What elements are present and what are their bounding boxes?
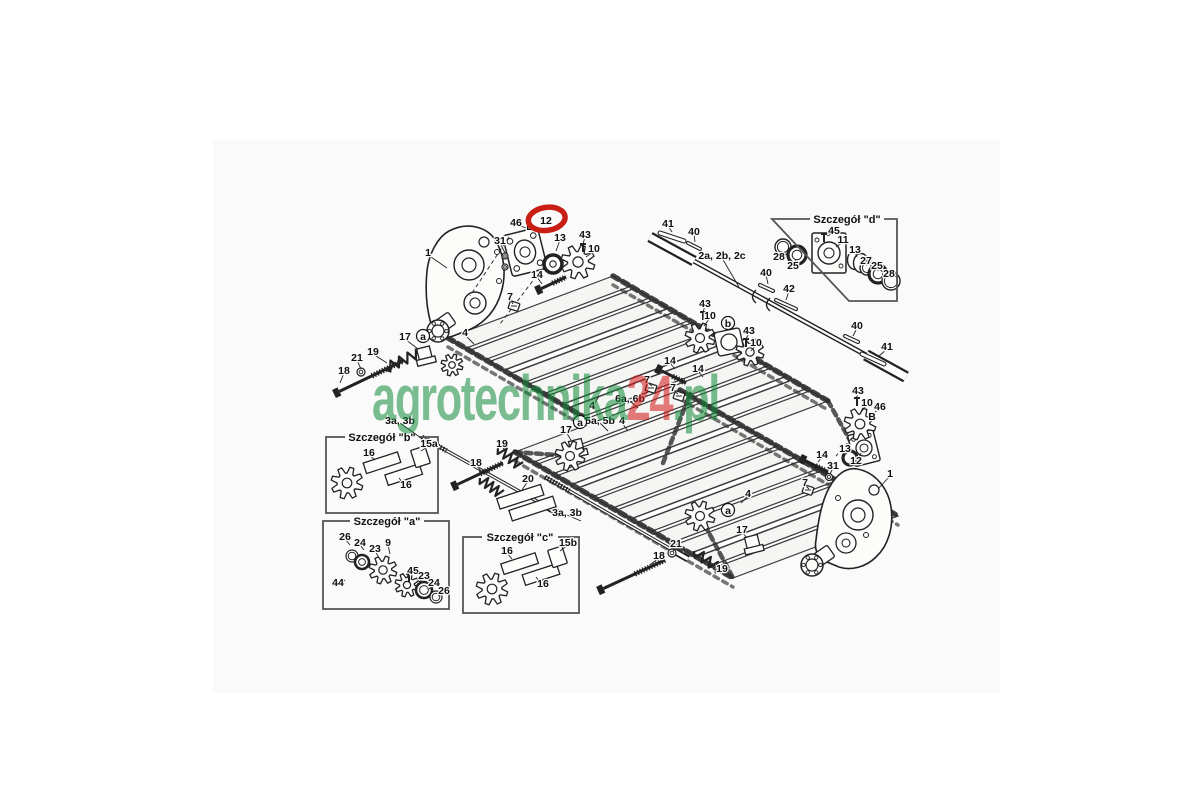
part-callout-7: 7 (802, 477, 808, 489)
part-callout-14: 14 (692, 363, 704, 375)
part-callout-43: 43 (579, 229, 591, 241)
product-image-area: Szczegół "d" Szczegół "b" Szczegół "a" S… (213, 140, 1000, 693)
part-callout-7: 7 (644, 374, 650, 386)
part-callout-17: 17 (736, 524, 748, 536)
part-callout-41: 41 (662, 218, 674, 230)
part-callout-13: 13 (554, 232, 566, 244)
part-callout-12: 12 (540, 215, 552, 227)
detail-box-title-d: Szczegół "d" (813, 214, 880, 226)
part-callout-b: b (725, 318, 731, 330)
part-callout-15a: 15a (420, 438, 438, 450)
part-callout-1: 1 (887, 468, 893, 480)
part-callout-28: 28 (883, 268, 895, 280)
part-callout-31: 31 (827, 460, 839, 472)
part-callout-43: 43 (743, 325, 755, 337)
part-callout-3a3b: 3a, 3b (385, 415, 415, 427)
part-callout-4: 4 (462, 327, 468, 339)
part-callout-4: 4 (619, 415, 625, 427)
part-callout-18: 18 (653, 550, 665, 562)
part-callout-26: 26 (339, 531, 351, 543)
part-callout-14: 14 (664, 355, 676, 367)
part-callout-a: a (577, 417, 583, 429)
detail-box-title-a: Szczegół "a" (354, 516, 421, 528)
part-callout-24: 24 (354, 537, 366, 549)
part-callout-28: 28 (773, 251, 785, 263)
part-callout-25: 25 (787, 260, 799, 272)
part-callout-21: 21 (351, 352, 363, 364)
part-callout-31: 31 (494, 235, 506, 247)
part-callout-11: 11 (837, 234, 848, 246)
part-callout-21: 21 (670, 538, 682, 550)
part-callout-10: 10 (704, 310, 716, 322)
part-callout-10: 10 (750, 337, 762, 349)
part-callout-18: 18 (470, 457, 482, 469)
part-callout-14: 14 (531, 269, 543, 281)
part-callout-16: 16 (537, 578, 549, 590)
part-callout-25: 25 (871, 260, 883, 272)
part-callout-19: 19 (367, 346, 379, 358)
part-callout-12: 12 (850, 455, 862, 467)
part-callout-43: 43 (852, 385, 864, 397)
part-callout-7: 7 (670, 382, 676, 394)
part-callout-19: 19 (496, 438, 508, 450)
part-callout-20: 20 (522, 473, 534, 485)
part-callout-42: 42 (783, 283, 795, 295)
part-callout-B: B (868, 411, 876, 423)
part-callout-41: 41 (881, 341, 893, 353)
part-callout-40: 40 (688, 226, 700, 238)
part-callout-4: 4 (745, 488, 751, 500)
part-callout-5a5b: 5a, 5b (585, 415, 615, 427)
part-callout-19: 19 (716, 563, 728, 575)
part-callout-7: 7 (507, 291, 513, 303)
part-callout-46: 46 (874, 401, 886, 413)
part-callout-46: 46 (510, 217, 522, 229)
part-callout-4: 4 (589, 400, 595, 412)
part-callout-40: 40 (760, 267, 772, 279)
detail-box-title-b: Szczegół "b" (348, 432, 415, 444)
part-callout-13: 13 (839, 443, 851, 455)
part-callout-9: 9 (385, 537, 391, 549)
part-callout-40: 40 (851, 320, 863, 332)
part-callout-1: 1 (425, 247, 431, 259)
part-callout-15b: 15b (559, 537, 577, 549)
part-callout-18: 18 (338, 365, 350, 377)
detail-box-title-c: Szczegół "c" (487, 532, 554, 544)
part-callout-16: 16 (363, 447, 375, 459)
part-callout-3a3b: 3a, 3b (552, 507, 582, 519)
part-callout-23: 23 (369, 543, 381, 555)
parts-diagram: Szczegół "d" Szczegół "b" Szczegół "a" S… (213, 140, 1000, 693)
part-callout-16: 16 (501, 545, 513, 557)
part-callout-16: 16 (400, 479, 412, 491)
part-callout-44: 44 (332, 577, 344, 589)
page: { "page": { "background": "#ffffff", "im… (0, 0, 1200, 800)
part-callout-a: a (420, 331, 426, 343)
part-callout-17: 17 (399, 331, 411, 343)
part-callout-10: 10 (588, 243, 600, 255)
part-callout-17: 17 (560, 424, 572, 436)
part-callout-6a6b: 6a, 6b (615, 393, 645, 405)
part-callout-43: 43 (699, 298, 711, 310)
part-callout-a: a (725, 505, 731, 517)
part-callout-10: 10 (861, 397, 873, 409)
part-callout-2a2b2c: 2a, 2b, 2c (698, 250, 745, 262)
part-callout-26: 26 (438, 585, 450, 597)
